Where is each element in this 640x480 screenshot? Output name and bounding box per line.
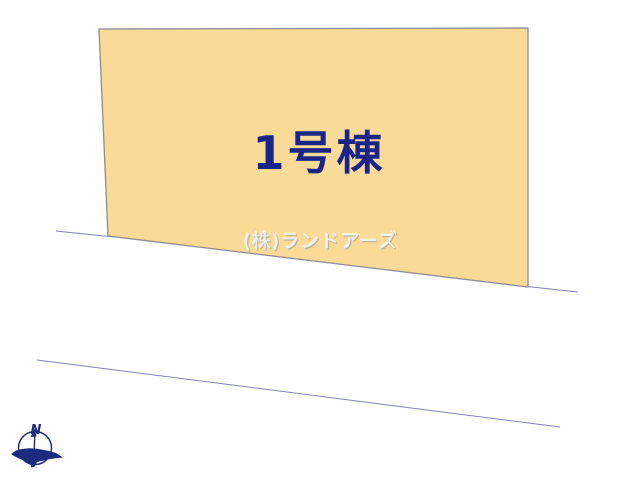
boundary-line-upper-right (527, 287, 578, 293)
boundary-line-upper-left (56, 231, 109, 237)
lot-number-label: 1号棟 (252, 117, 385, 183)
company-watermark-text: (株)ランドアーズ (244, 227, 399, 254)
site-plan-canvas: N 1号棟 (株)ランドアーズ (0, 0, 640, 480)
compass-north-label: N (31, 423, 42, 438)
north-compass-icon: N (11, 423, 63, 468)
boundary-line-lower (37, 360, 560, 427)
